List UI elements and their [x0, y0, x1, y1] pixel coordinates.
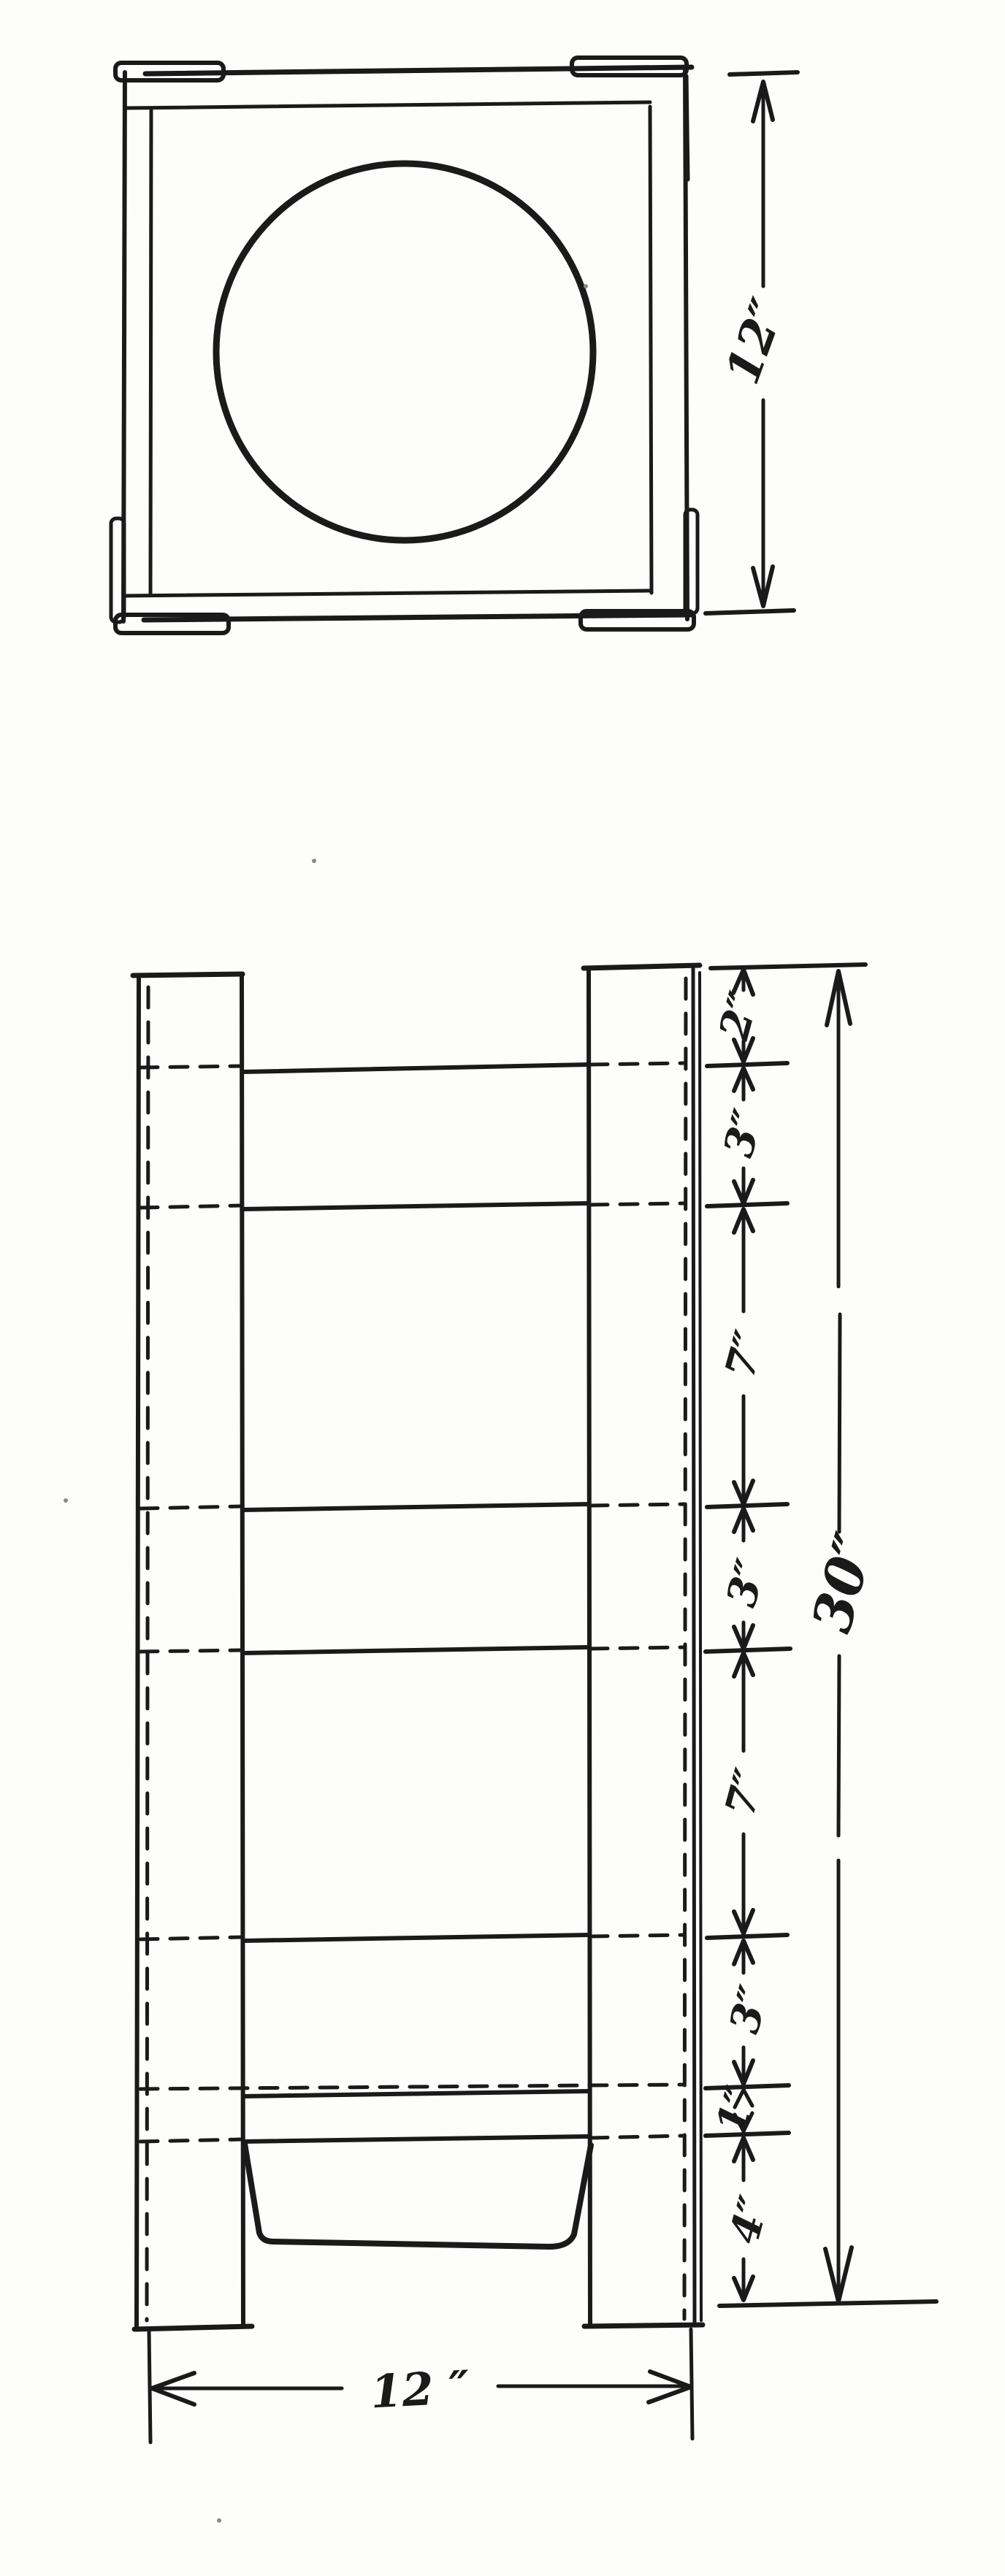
trough-top-edge: [243, 2091, 589, 2096]
feed-trough: [140, 2091, 684, 2247]
tick-bottom: [719, 2301, 936, 2306]
segment-label-0: 2″: [710, 987, 769, 1046]
left-board-top-cap: [133, 974, 242, 975]
segment-label-4: 7″: [716, 1764, 774, 1822]
right-board-top-cap: [584, 965, 700, 968]
overall-height-dimension: 30″: [800, 971, 887, 2301]
scan-speck: [64, 1498, 68, 1503]
segment-label-3: 3″: [717, 1555, 776, 1612]
side-strip-top-right: [687, 76, 688, 180]
tick-top: [711, 965, 865, 968]
extension-line-left: [149, 2331, 150, 2442]
plan-view: 12″: [111, 58, 798, 633]
feed-gap-line: [243, 2136, 589, 2142]
scan-speck: [584, 284, 588, 288]
segment-label-1: 3″: [714, 1105, 773, 1162]
overall-height-label: 30″: [800, 1527, 887, 1639]
side-elevation: 2″ 3″ 7″ 3″ 7″ 3″ 1″ 4″ 30″ 12: [133, 965, 936, 2442]
extension-line-right: [691, 2329, 692, 2439]
scan-speck: [217, 2518, 221, 2523]
plan-height-dimension: 12″: [706, 72, 798, 613]
scan-speck: [312, 859, 316, 863]
trough-outline: [245, 2144, 591, 2247]
segment-dimension-chain: 2″ 3″ 7″ 3″ 7″ 3″ 1″ 4″: [706, 965, 936, 2306]
overall-width-label: 12 ″: [369, 2360, 470, 2418]
hole-circle: [216, 164, 593, 540]
feeder-plan-drawing: 12″: [0, 0, 1005, 2576]
scanned-plan-sheet: 12″: [0, 0, 1005, 2576]
shelf-lines: [140, 1063, 684, 2089]
right-board-outer-edge-2: [700, 973, 701, 2320]
extension-tick-top: [730, 72, 798, 74]
extension-tick-bottom: [706, 610, 794, 613]
plan-height-label: 12″: [715, 291, 796, 391]
left-board-bottom-cap: [134, 2326, 252, 2329]
overall-width-dimension: 12 ″: [149, 2329, 692, 2442]
right-board-bottom-cap: [584, 2325, 703, 2326]
segment-label-2: 7″: [716, 1326, 774, 1384]
segment-label-7: 4″: [720, 2191, 779, 2249]
left-hidden-edge-dashed: [147, 987, 148, 2320]
right-board-outer-edge: [693, 968, 695, 2323]
plan-frame: [111, 58, 698, 633]
segment-label-5: 3″: [720, 1981, 779, 2039]
